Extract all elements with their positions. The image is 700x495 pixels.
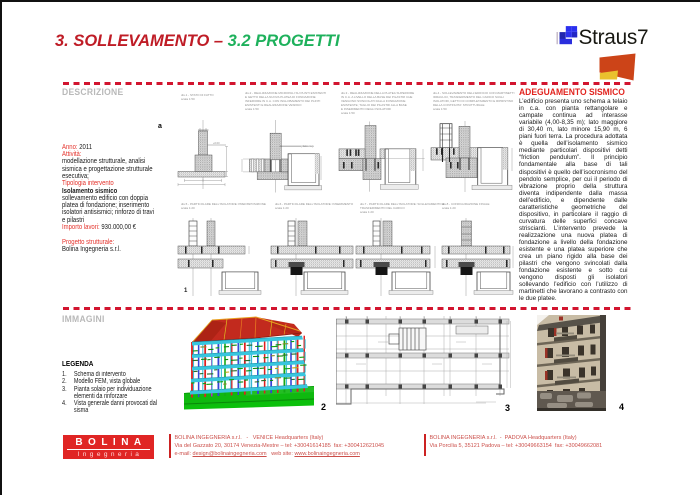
- svg-text:scala 1:20: scala 1:20: [360, 210, 374, 214]
- svg-text:scala 1:20: scala 1:20: [181, 206, 195, 210]
- svg-text:Straus7: Straus7: [579, 26, 649, 49]
- svg-text:scala 1:50: scala 1:50: [341, 111, 355, 115]
- svg-text:scala 1:20: scala 1:20: [442, 206, 456, 210]
- svg-text:1: 1: [184, 288, 188, 294]
- svg-text:+0.00: +0.00: [213, 141, 220, 145]
- svg-text:scala 1:50: scala 1:50: [433, 107, 447, 111]
- svg-text:scala 1:50: scala 1:50: [181, 97, 195, 101]
- svg-text:scala 1:20: scala 1:20: [275, 206, 289, 210]
- svg-text:scala 1:50: scala 1:50: [245, 107, 259, 111]
- svg-text:platea sup.: platea sup.: [302, 144, 315, 148]
